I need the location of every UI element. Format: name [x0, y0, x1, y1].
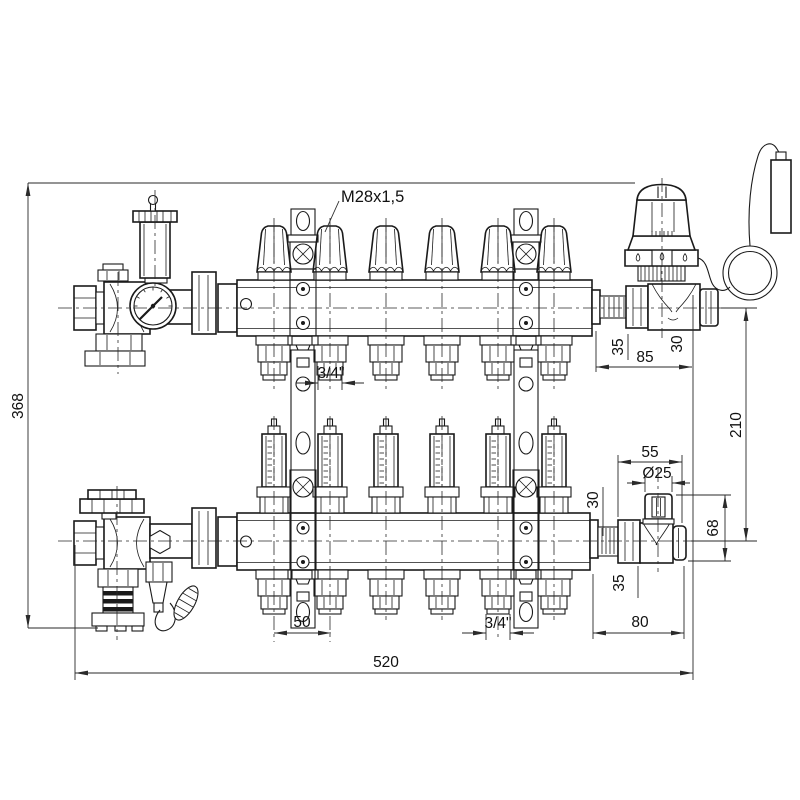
remote-sensor: [771, 152, 791, 233]
flow-meters: [257, 419, 571, 513]
dim-upper-valve-nut: 30: [669, 335, 686, 353]
dim-overall-height: 368: [10, 393, 27, 419]
fill-valve-with-cap: [146, 562, 203, 631]
dim-overall-width: 520: [373, 654, 399, 671]
manifold-technical-drawing: 368 520 50 3/4" 3/4" M28x1,5 35 85 30: [0, 0, 800, 800]
dim-upper-valve-total: 85: [636, 349, 653, 366]
dim-lower-valve-width: 55: [641, 444, 658, 461]
dim-lower-valve-total: 80: [631, 614, 649, 631]
pressure-gauge: [130, 283, 176, 329]
valve-handwheel: [643, 494, 674, 524]
dim-thread-top: 3/4": [317, 365, 344, 382]
technical-drawing-page: 368 520 50 3/4" 3/4" M28x1,5 35 85 30: [0, 0, 800, 800]
lower-union-nut: [192, 508, 216, 568]
thermostatic-head: [625, 185, 698, 282]
dim-lower-valve-height: 68: [705, 519, 722, 536]
hex-plug: [150, 531, 170, 554]
protective-cap: [169, 582, 203, 623]
lower-manifold: [74, 419, 686, 631]
dim-lower-valve-stub: 30: [585, 491, 602, 509]
lower-right-valve: [590, 494, 686, 563]
callout-thread-size: M28x1,5: [341, 188, 404, 206]
handwheel: [80, 490, 144, 519]
dim-handwheel-diameter: Ø25: [642, 465, 671, 482]
thermostatic-valve: [592, 284, 718, 330]
dim-thread-bottom: 3/4": [484, 615, 511, 632]
upper-union-nut: [192, 272, 216, 334]
dim-upper-valve-union: 35: [610, 338, 627, 355]
dim-axis-distance: 210: [728, 412, 745, 438]
drain-valve: [92, 569, 144, 631]
lower-left-shutoff-valve: [74, 490, 192, 569]
capillary-tube: [698, 144, 781, 300]
dim-lower-valve-union: 35: [611, 574, 628, 591]
dim-outlet-spacing: 50: [293, 614, 311, 631]
